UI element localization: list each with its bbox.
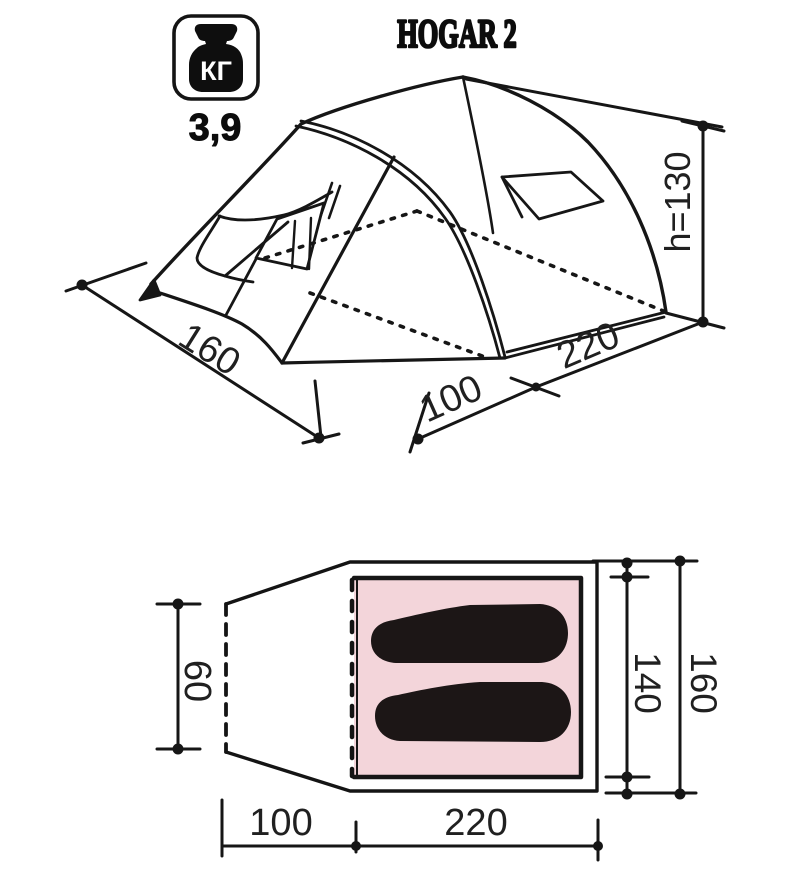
svg-text:220: 220: [444, 802, 507, 844]
svg-text:HOGAR 2: HOGAR 2: [397, 13, 516, 57]
svg-text:h=130: h=130: [657, 151, 698, 252]
svg-text:60: 60: [176, 660, 218, 702]
svg-text:100: 100: [249, 802, 312, 844]
svg-text:140: 140: [627, 652, 668, 714]
svg-text:КГ: КГ: [200, 56, 232, 86]
svg-text:3,9: 3,9: [189, 107, 242, 149]
svg-text:100: 100: [414, 367, 489, 431]
svg-text:160: 160: [683, 652, 724, 714]
svg-text:160: 160: [171, 315, 247, 384]
